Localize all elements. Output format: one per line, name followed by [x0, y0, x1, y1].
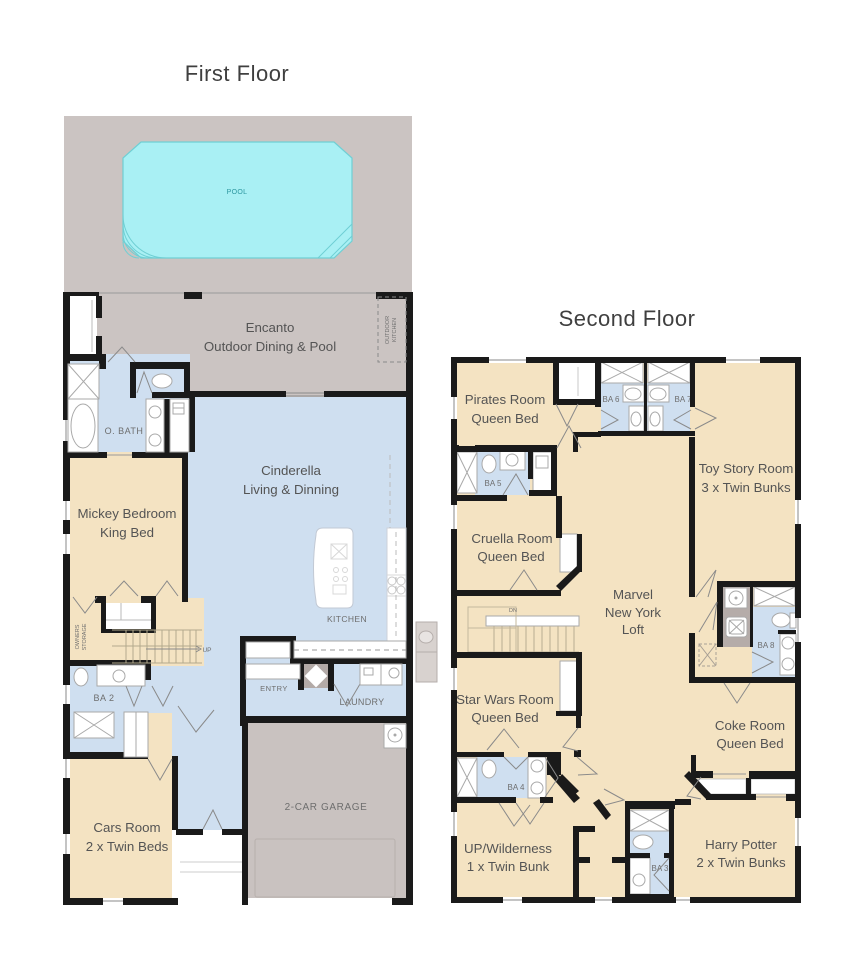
svg-text:Mickey Bedroom: Mickey Bedroom	[77, 506, 176, 521]
svg-text:Cruella Room: Cruella Room	[471, 531, 552, 546]
svg-text:DN: DN	[509, 608, 517, 614]
svg-text:UP: UP	[202, 647, 211, 654]
svg-text:KITCHEN: KITCHEN	[392, 318, 398, 342]
svg-text:Pirates Room: Pirates Room	[465, 392, 546, 407]
svg-text:BA 8: BA 8	[758, 641, 775, 650]
svg-text:2-CAR GARAGE: 2-CAR GARAGE	[285, 802, 368, 813]
svg-text:2 x Twin Beds: 2 x Twin Beds	[86, 839, 169, 854]
svg-text:O. BATH: O. BATH	[105, 426, 144, 436]
svg-text:UP/Wilderness: UP/Wilderness	[464, 841, 552, 856]
svg-text:Outdoor Dining & Pool: Outdoor Dining & Pool	[204, 339, 336, 354]
svg-text:Living & Dinning: Living & Dinning	[243, 482, 339, 497]
svg-text:OUTDOOR: OUTDOOR	[385, 316, 391, 344]
svg-text:New York: New York	[605, 605, 662, 620]
svg-text:Second Floor: Second Floor	[559, 306, 696, 331]
svg-text:Encanto: Encanto	[246, 320, 295, 335]
svg-text:Loft: Loft	[622, 622, 644, 637]
svg-text:Queen Bed: Queen Bed	[471, 710, 538, 725]
svg-text:ENTRY: ENTRY	[260, 684, 288, 693]
svg-text:2 x Twin Bunks: 2 x Twin Bunks	[696, 855, 786, 870]
svg-text:BA 6: BA 6	[603, 395, 620, 404]
svg-text:1 x Twin Bunk: 1 x Twin Bunk	[467, 859, 550, 874]
svg-text:First Floor: First Floor	[185, 61, 290, 86]
svg-text:BA 7: BA 7	[675, 395, 692, 404]
svg-text:Queen Bed: Queen Bed	[477, 549, 544, 564]
svg-text:Harry Potter: Harry Potter	[705, 837, 777, 852]
svg-text:Star Wars Room: Star Wars Room	[456, 692, 554, 707]
svg-text:Toy Story Room: Toy Story Room	[699, 461, 794, 476]
svg-text:3 x Twin Bunks: 3 x Twin Bunks	[701, 480, 791, 495]
svg-text:Marvel: Marvel	[613, 587, 653, 602]
svg-text:Cinderella: Cinderella	[261, 463, 321, 478]
svg-text:BA 4: BA 4	[508, 783, 525, 792]
svg-text:Queen Bed: Queen Bed	[471, 411, 538, 426]
svg-text:Queen Bed: Queen Bed	[716, 736, 783, 751]
svg-text:Cars Room: Cars Room	[93, 820, 160, 835]
svg-text:Coke Room: Coke Room	[715, 718, 785, 733]
svg-text:KITCHEN: KITCHEN	[327, 614, 367, 624]
svg-text:POOL: POOL	[227, 189, 248, 196]
svg-text:BA 2: BA 2	[93, 693, 114, 703]
svg-text:OWNERS: OWNERS	[75, 624, 81, 649]
svg-text:STORAGE: STORAGE	[82, 623, 88, 650]
svg-text:BA 5: BA 5	[485, 479, 502, 488]
svg-text:King Bed: King Bed	[100, 525, 154, 540]
